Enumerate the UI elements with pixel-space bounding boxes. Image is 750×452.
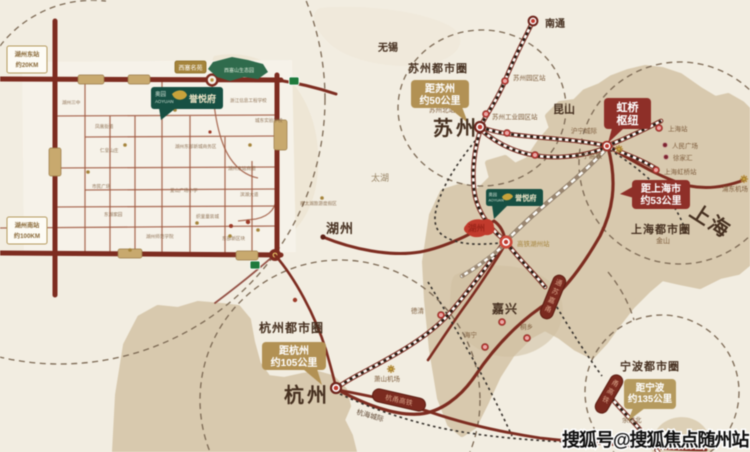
svg-text:海宁: 海宁 [464,330,478,339]
svg-text:太湖: 太湖 [371,172,389,183]
svg-text:苏州工业园区站: 苏州工业园区站 [492,112,538,121]
svg-text:苏州都市圈: 苏州都市圈 [408,61,468,75]
svg-text:嘉兴: 嘉兴 [491,301,518,316]
svg-text:萧山机场: 萧山机场 [374,374,401,383]
svg-text:东湖家园: 东湖家园 [104,211,123,218]
svg-text:约50公里: 约50公里 [419,94,460,107]
svg-text:湖州师范学院: 湖州师范学院 [146,233,174,240]
svg-text:虹桥: 虹桥 [617,100,640,114]
svg-text:南通: 南通 [545,17,565,30]
svg-text:距杭州: 距杭州 [279,344,309,357]
svg-text:苏州: 苏州 [433,117,479,140]
svg-text:上海虹桥站: 上海虹桥站 [664,167,697,176]
svg-text:东部新区块: 东部新区块 [222,235,245,242]
svg-text:浙江信息工程学校: 浙江信息工程学校 [230,97,267,104]
svg-text:搜狐号@搜狐焦点随州站: 搜狐号@搜狐焦点随州站 [562,429,750,450]
svg-text:人民广场: 人民广场 [672,141,699,150]
svg-text:约53公里: 约53公里 [640,194,681,207]
svg-text:高铁湖州站: 高铁湖州站 [517,239,550,248]
svg-text:湖州东站: 湖州东站 [15,51,41,59]
svg-text:昆山: 昆山 [553,102,575,116]
svg-text:奥园: 奥园 [155,90,167,98]
svg-text:徐家汇: 徐家汇 [673,153,693,162]
svg-text:约100KM: 约100KM [14,232,40,240]
svg-text:誉悦府: 誉悦府 [514,194,537,203]
svg-text:沪宁城际: 沪宁城际 [571,126,598,135]
svg-text:仁皇山庄: 仁皇山庄 [100,147,119,154]
svg-text:湖州三中: 湖州三中 [62,99,81,106]
svg-text:宁波都市圈: 宁波都市圈 [620,359,680,373]
svg-text:湖州东站商圈: 湖州东站商圈 [228,165,256,172]
svg-text:枢纽: 枢纽 [617,113,639,127]
svg-text:织里童装城: 织里童装城 [196,213,219,220]
svg-text:爱山广场小学: 爱山广场小学 [170,187,198,194]
svg-text:奥园: 奥园 [489,191,497,198]
svg-text:南太湖旅游度假区: 南太湖旅游度假区 [300,200,337,207]
svg-text:湖州: 湖州 [468,223,485,233]
svg-text:城东实验学校: 城东实验学校 [255,117,283,124]
svg-text:杭州: 杭州 [284,383,330,407]
svg-text:上海都市圈: 上海都市圈 [631,222,691,236]
svg-text:浦东机场: 浦东机场 [722,184,749,193]
svg-text:金山: 金山 [656,236,670,245]
svg-text:凤凰街道: 凤凰街道 [95,123,114,130]
svg-text:杭州都市圈: 杭州都市圈 [259,320,324,335]
svg-text:上海站: 上海站 [668,124,688,133]
svg-text:桐乡: 桐乡 [520,322,533,331]
svg-text:约105公里: 约105公里 [271,356,318,369]
svg-text:距宁波: 距宁波 [636,382,665,394]
svg-text:西塞名苑: 西塞名苑 [178,64,202,72]
svg-text:约20KM: 约20KM [16,61,39,69]
svg-text:西塞山生态园: 西塞山生态园 [224,67,254,74]
svg-text:距苏州: 距苏州 [425,82,455,95]
svg-text:滨湖大道: 滨湖大道 [240,191,259,198]
svg-text:德清: 德清 [411,306,425,315]
svg-text:距上海市: 距上海市 [641,182,681,195]
svg-text:无锡: 无锡 [377,41,398,54]
svg-text:誉悦府: 誉悦府 [188,93,216,104]
svg-text:市民广场: 市民广场 [92,183,111,190]
svg-text:约135公里: 约135公里 [628,393,673,405]
svg-text:湖州东部新城商务区: 湖州东部新城商务区 [175,143,217,150]
svg-text:湖州: 湖州 [326,221,354,236]
svg-text:AOYUAN: AOYUAN [155,99,174,104]
svg-text:沪宁高铁: 沪宁高铁 [576,151,603,160]
svg-text:苏州园区站: 苏州园区站 [513,73,546,82]
svg-text:湖州南站: 湖州南站 [15,222,41,230]
svg-text:AOYUAN: AOYUAN [489,199,505,203]
